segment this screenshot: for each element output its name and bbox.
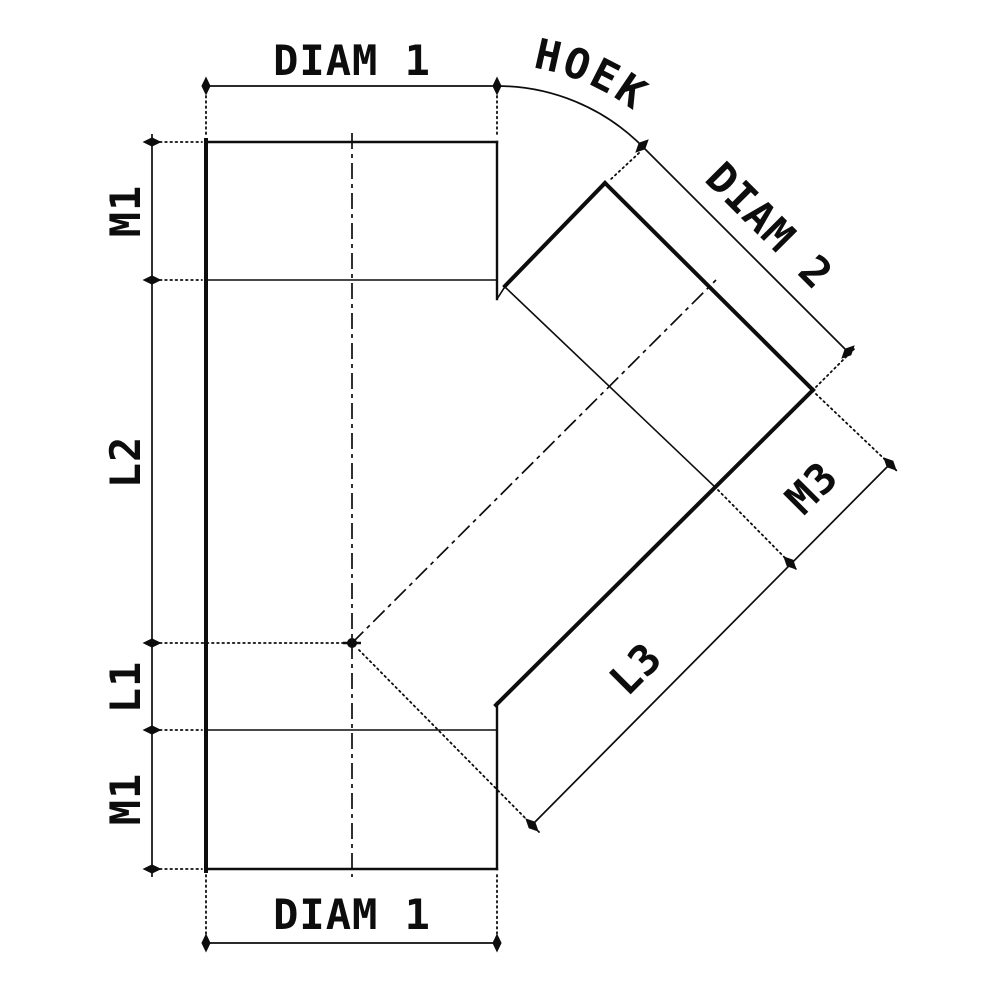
dimension-diam2: DIAM 2 (610, 136, 858, 387)
l2-label: L2 (101, 436, 150, 489)
branch-top-edge (505, 183, 605, 286)
branch-socket-shoulder (505, 287, 715, 487)
dim-endpoint (492, 934, 501, 953)
dimension-diam1-bottom: DIAM 1 (201, 875, 501, 953)
dim-line (532, 464, 890, 825)
dim-endpoint (143, 137, 162, 146)
dim-endpoint (143, 864, 162, 873)
ext-line (359, 650, 539, 832)
dimension-hoek: HOEK (497, 29, 658, 146)
dim-endpoint (143, 275, 162, 284)
m1-top-label: M1 (101, 185, 150, 238)
branch-centerline (352, 280, 716, 643)
dim-endpoint (780, 553, 800, 573)
hoek-label: HOEK (530, 29, 657, 120)
dimension-left-chain: M1 L2 L1 M1 (101, 134, 344, 877)
m3-label: M3 (776, 452, 848, 524)
dimension-l3-m3: L3 M3 (359, 394, 900, 835)
l1-label: L1 (101, 661, 150, 714)
drawing-canvas: DIAM 1 HOEK DIAM 2 (0, 0, 1000, 1000)
dim-endpoint (143, 638, 162, 647)
centerlines (343, 133, 716, 877)
ext-line (610, 153, 639, 180)
center-point-marker (343, 638, 361, 648)
m1-bottom-label: M1 (101, 773, 150, 826)
dim-endpoint (201, 934, 210, 953)
dim-endpoint (201, 77, 210, 96)
dimension-diam1-top: DIAM 1 (201, 36, 501, 137)
diam1-bottom-label: DIAM 1 (273, 890, 431, 939)
diam1-top-label: DIAM 1 (273, 36, 431, 85)
dim-endpoint (143, 725, 162, 734)
diam2-label: DIAM 2 (696, 153, 842, 299)
fitting-outline (206, 140, 813, 871)
pipe-fitting-diagram: DIAM 1 HOEK DIAM 2 (0, 0, 1000, 1000)
